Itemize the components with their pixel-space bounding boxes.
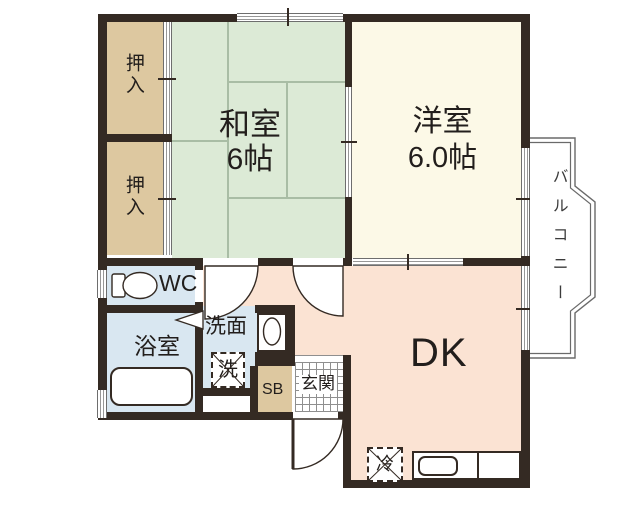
fridge-cross-lines [368, 448, 402, 481]
toilet-bowl-icon [123, 273, 157, 299]
oshiire-2-label: 押入 [122, 175, 143, 219]
oshiire-1-label: 押入 [122, 53, 143, 97]
washitsu-size-label: 6帖 [195, 143, 305, 176]
youshitsu-label: 洋室 [385, 105, 500, 138]
overlay-graphics [0, 0, 640, 512]
balcony-label: バルコニー [549, 168, 567, 313]
washroom-label: 洗面 [205, 315, 247, 338]
genkan-label: 玄関 [299, 375, 337, 394]
bath-door-mark [176, 311, 203, 329]
bathroom-label: 浴室 [125, 334, 189, 359]
floor-plan: 洗 冷 押入 押入 和室 6帖 洋室 6.0帖 バルコニー WC 浴室 [0, 0, 640, 512]
youshitsu-size-label: 6.0帖 [385, 143, 500, 175]
door-arc-washitsu-east [293, 266, 343, 316]
door-arc-entrance [293, 419, 343, 469]
washer-cross-lines [212, 353, 244, 387]
sink-basin-icon [264, 318, 281, 345]
shoebox-label: SB [262, 381, 283, 399]
door-arc-washitsu-west [205, 266, 258, 319]
wc-label: WC [159, 271, 197, 296]
washitsu-label: 和室 [195, 108, 305, 142]
dk-label: DK [410, 331, 468, 375]
